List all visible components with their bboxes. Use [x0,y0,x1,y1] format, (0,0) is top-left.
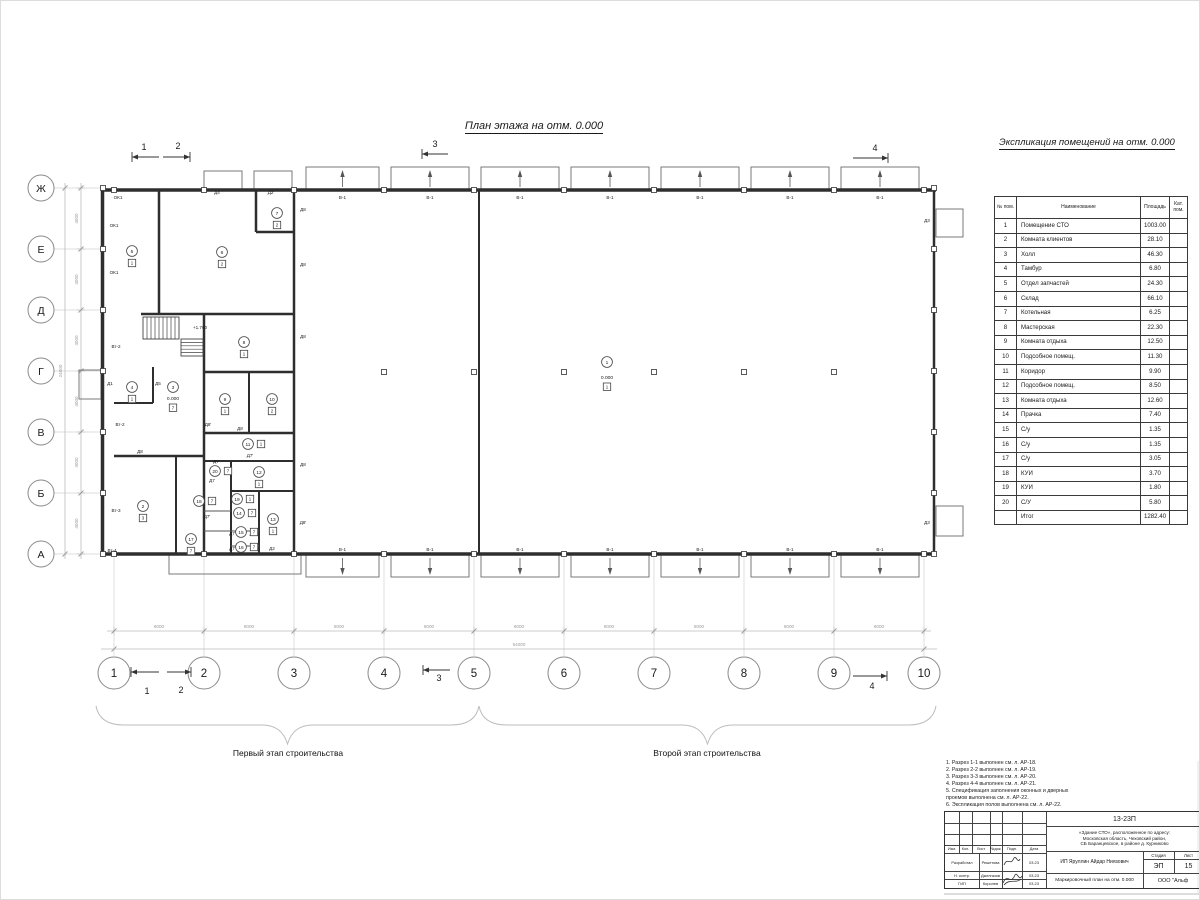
svg-text:4000: 4000 [74,335,79,346]
axis-number: 10 [918,668,931,680]
note-line: проемов выполнена см. л. АР-22. [946,795,1196,802]
plan-label: Д7 [229,531,235,536]
table-row: 10Подсобное помещ.11.30 [995,350,1188,365]
plan-label: Вт-2 [111,344,121,349]
section-mark: 2 [178,685,183,695]
plan-label: Д8 [237,426,243,431]
note-line: 5. Спецификация заполнения оконных и две… [946,788,1196,795]
axis-letter: Г [38,366,44,378]
col-name: Наименование [1017,197,1141,219]
room-number: 19 [234,497,240,503]
tb-client: ИП Яруллин Айдар Ниязович [1046,851,1143,873]
column [101,186,106,191]
table-row: 3Холл46.30 [995,248,1188,263]
page-title: План этажа на отм. 0.000 [449,120,619,132]
tb-name-1: Решетова [979,853,1002,871]
column [472,188,477,193]
plan-label: Д8' [300,520,307,525]
tb-date-1: 03.23 [1022,853,1046,871]
room-explication-table: № пом. Наименование Площадь Кат. пом. 1П… [994,196,1188,525]
axis-letter: Е [37,244,44,256]
tb-col-izm: Изм. [945,845,959,853]
table-row: 17С/у3.05 [995,452,1188,467]
column [652,188,657,193]
table-row: 7Котельная6.25 [995,306,1188,321]
title-block: Изм. Кол. Лист №док. Подп. Дата Разработ… [944,811,1200,889]
table-row: 4Тамбур6.80 [995,262,1188,277]
room-number: 7 [276,211,279,217]
tb-col-podp: Подп. [1002,845,1022,853]
plan-label: Д8 [300,462,306,467]
tb-stage-value: ЭП [1143,859,1174,873]
tb-date-2: 03.23 [1022,871,1046,879]
stage-brace [479,706,936,744]
gate-label: В-1 [696,547,704,552]
table-row: 8Мастерская22.30 [995,321,1188,336]
column [832,188,837,193]
room-number: 15 [238,530,244,536]
plan-label: Д7' [204,514,211,519]
gate-label: В-1 [786,547,794,552]
axis-letter: А [37,549,44,561]
room-number: 3 [172,385,175,391]
column [562,370,567,375]
gate-label: В-1 [696,195,704,200]
table-total-row: Итог1282.40 [995,510,1188,525]
tb-stage-label: Стадия [1143,851,1174,859]
table-row: 6Склад66.10 [995,291,1188,306]
axis-number: 8 [741,668,747,680]
section-mark: 1 [141,142,146,152]
table-row: 20С/У5.80 [995,496,1188,511]
tb-company: ООО "Альф [1143,873,1200,888]
column [101,430,106,435]
column [932,369,937,374]
axis-number: 3 [291,668,297,680]
column [101,491,106,496]
plan-label: Вт-2 [115,422,125,427]
notes-list: 1. Разрез 1-1 выполнен см. л. АР-18.2. Р… [946,760,1196,809]
tb-role-3: ГИП [945,879,979,888]
column [932,247,937,252]
plan-label: Д3 [924,218,930,223]
axis-letter: Д [37,305,44,317]
column [652,370,657,375]
plan-label: ОК1 [110,270,119,275]
table-row: 11Коридор9.90 [995,364,1188,379]
gate-label: В-1 [876,195,884,200]
svg-text:6000: 6000 [874,624,885,629]
room-number: 9 [224,397,227,403]
tb-col-data: Дата [1022,845,1046,853]
tb-sheet-value: 15 [1174,859,1200,873]
svg-text:4000: 4000 [74,457,79,468]
column [742,552,747,557]
room-number: 8 [243,340,246,346]
tb-role-2: Н. контр. [945,871,979,879]
gate-label: В-1 [606,547,614,552]
drawing-sheet: 6000600060006000600060006000600060005400… [0,0,1200,900]
column [112,188,117,193]
note-line: 1. Разрез 1-1 выполнен см. л. АР-18. [946,760,1196,767]
room-number: 13 [270,517,276,523]
column [932,430,937,435]
svg-text:6000: 6000 [334,624,345,629]
signature-2 [1000,870,1024,888]
axis-number: 5 [471,668,477,680]
section-mark: 2 [175,141,180,151]
column [292,552,297,557]
room-number: 11 [246,442,251,448]
column [292,188,297,193]
section-mark: 4 [869,681,874,691]
column [101,247,106,252]
room-number: 16 [238,545,244,551]
room-number: 18 [196,499,202,505]
column [932,552,937,557]
column [562,188,567,193]
column [202,188,207,193]
column [202,552,207,557]
table-row: 18КУИ3.70 [995,467,1188,482]
column [382,188,387,193]
plan-label: Д2' [268,190,275,195]
svg-text:6000: 6000 [244,624,255,629]
room-number: 1 [606,360,609,366]
axis-number: 1 [111,668,117,680]
stage2-label: Второй этап строительства [592,748,822,758]
tb-name-3: Королев [979,879,1002,888]
elevation-mark: 0.000 [601,375,614,381]
table-row: 2Комната клиентов28.10 [995,233,1188,248]
svg-text:4000: 4000 [74,518,79,529]
table-header-row: № пом. Наименование Площадь Кат. пом. [995,197,1188,219]
axis-letter: Ж [36,183,46,195]
svg-text:6000: 6000 [694,624,705,629]
elevation-mark: 0.000 [167,396,180,402]
table-row: 9Комната отдыха12.50 [995,335,1188,350]
signature-1 [1002,853,1022,870]
gate-label: В-1 [516,547,524,552]
plan-label: Вт-3 [111,508,121,513]
column [832,370,837,375]
tb-sheet-title: Маркировочный план на отм. 0.000 [1046,873,1143,888]
gate-label: В-1 [426,195,434,200]
column [832,552,837,557]
column [101,369,106,374]
gate-label: В-1 [606,195,614,200]
svg-text:6000: 6000 [424,624,435,629]
tb-date-3: 03.23 [1022,879,1046,888]
axis-number: 9 [831,668,837,680]
svg-text:6000: 6000 [784,624,795,629]
tb-name-2: Джелгазов [979,871,1002,879]
col-area: Площадь [1141,197,1170,219]
stage-brace [96,706,479,744]
column [932,186,937,191]
tb-col-kol: Кол. [959,845,972,853]
column [922,552,927,557]
note-line: 2. Разрез 2-2 выполнен см. л. АР-19. [946,767,1196,774]
plan-label: ОК1 [114,195,123,200]
room-number: 14 [236,511,242,517]
tb-sheet-label: Лист [1174,851,1200,859]
tb-col-list: Лист [972,845,990,853]
gate-label: В-1 [426,547,434,552]
column [382,552,387,557]
table-row: 15С/у1.35 [995,423,1188,438]
column [472,370,477,375]
plan-label: Д7 [213,459,219,464]
table-row: 14Прачка7.40 [995,408,1188,423]
axis-letter: Б [38,488,45,500]
stage1-label: Первый этап строительства [173,748,403,758]
svg-text:4000: 4000 [74,274,79,285]
axis-number: 4 [381,668,388,680]
col-category: Кат. пом. [1170,197,1188,219]
gate-label: В-1 [339,547,347,552]
table-row: 13Комната отдыха12.60 [995,394,1188,409]
note-line: 6. Экспликация полов выполнена см. л. АР… [946,802,1196,809]
tb-project-address: «Здание СТО», расположенное по адресу: М… [1046,826,1200,851]
svg-text:6000: 6000 [604,624,615,629]
section-mark: 3 [432,139,437,149]
room-number: 17 [188,537,194,543]
plan-label: Д7 [209,478,215,483]
gate-label: В-1 [876,547,884,552]
gate-label: В-1 [786,195,794,200]
explication-title: Экспликация помещений на отм. 0.000 [981,137,1193,148]
axis-number: 7 [651,668,657,680]
plan-label: Д7 [229,546,235,551]
svg-text:6000: 6000 [514,624,525,629]
room-number: 6 [221,250,224,256]
room-number: 4 [131,385,134,391]
plan-label: Д5 [155,381,161,386]
plan-label: Вт-4 [107,548,117,553]
tb-role-1: Разработал [945,853,979,871]
note-line: 3. Разрез 3-3 выполнен см. л. АР-20. [946,774,1196,781]
plan-label: ОК1 [110,223,119,228]
plan-label: Д2 [269,546,275,551]
section-mark: 4 [872,143,877,153]
column [472,552,477,557]
col-room-number: № пом. [995,197,1017,219]
svg-text:24000: 24000 [58,364,63,377]
table-row: 19КУИ1.80 [995,481,1188,496]
axis-number: 6 [561,668,567,680]
column [101,308,106,313]
section-mark: 3 [436,673,441,683]
stairs [181,339,203,356]
column [922,188,927,193]
plan-label: Д1 [107,381,113,386]
axis-number: 2 [201,668,207,680]
plan-label: Д8 [300,334,306,339]
stairs [143,317,179,339]
gate-label: В-1 [516,195,524,200]
plan-label: Д8 [300,262,306,267]
room-number: 10 [269,397,275,403]
section-mark: 1 [144,686,149,696]
room-number: 20 [212,469,218,475]
axis-letter: В [37,427,44,439]
column [382,370,387,375]
column [742,370,747,375]
column [562,552,567,557]
column [932,491,937,496]
plan-label: Д8' [205,422,212,427]
table-row: 5Отдел запчастей24.30 [995,277,1188,292]
svg-text:4000: 4000 [74,396,79,407]
plan-label: Д8 [300,207,306,212]
svg-text:6000: 6000 [154,624,165,629]
tb-col-doc: №док. [990,845,1002,853]
column [652,552,657,557]
plan-label: +1.760 [193,325,208,330]
table-row: 1Помещение СТО1003.00 [995,219,1188,234]
table-row: 12Подсобное помещ.8.50 [995,379,1188,394]
note-line: 4. Разрез 4-4 выполнен см. л. АР-21. [946,781,1196,788]
svg-text:4000: 4000 [74,213,79,224]
room-number: 12 [256,470,262,476]
column [742,188,747,193]
plan-label: Д3 [924,520,930,525]
gate-label: В-1 [339,195,347,200]
plan-label: Д4 [214,190,220,195]
tb-doc-number: 13-23П [1046,812,1200,826]
svg-text:54000: 54000 [513,642,526,647]
plan-label: Д8 [137,449,143,454]
column [101,552,106,557]
room-number: 5 [131,249,134,255]
room-number: 2 [142,504,145,510]
plan-label: Д7' [247,453,254,458]
table-row: 16С/у1.35 [995,437,1188,452]
column [932,308,937,313]
